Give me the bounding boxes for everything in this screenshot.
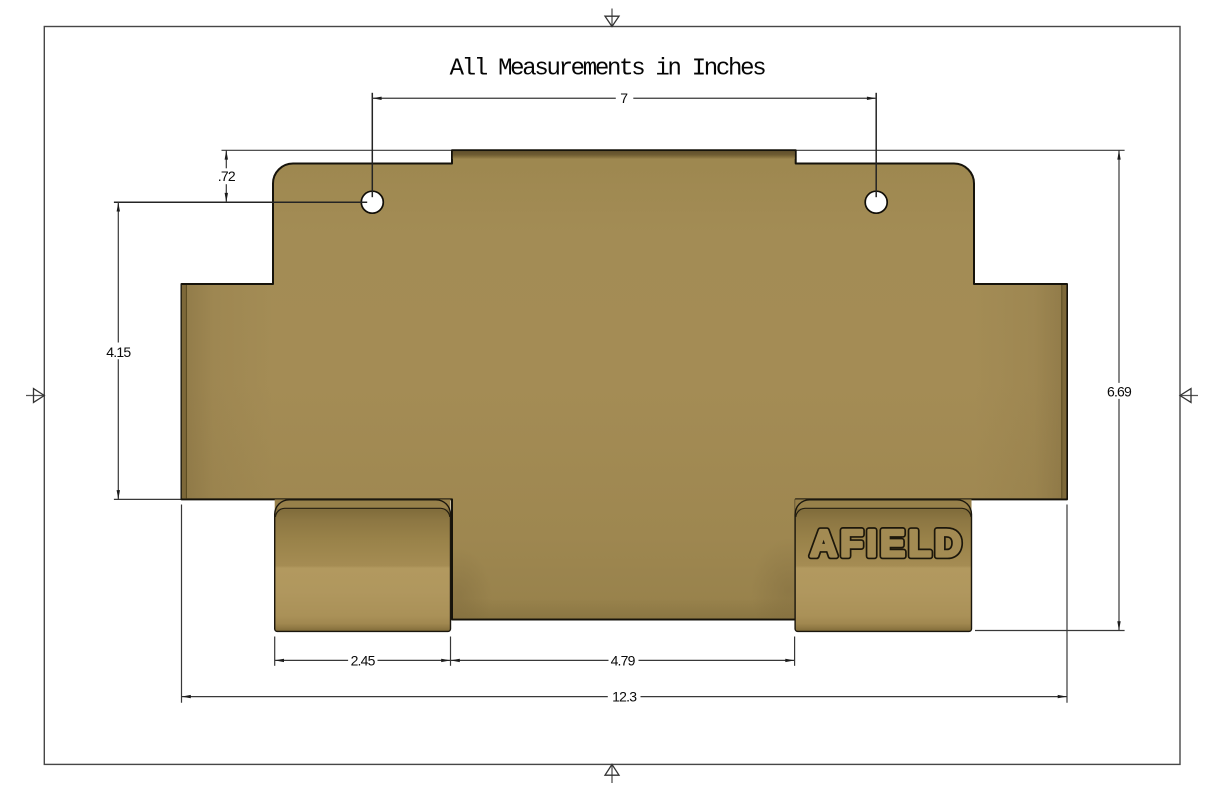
svg-text:4.15: 4.15: [106, 344, 131, 360]
svg-text:2.45: 2.45: [351, 652, 376, 668]
svg-text:12.3: 12.3: [612, 689, 637, 705]
svg-text:AFIELD: AFIELD: [810, 523, 965, 564]
svg-text:6.69: 6.69: [1107, 384, 1132, 400]
svg-text:.72: .72: [218, 168, 236, 184]
svg-text:7: 7: [620, 90, 628, 106]
svg-text:4.79: 4.79: [611, 652, 636, 668]
svg-text:All Measurements in Inches: All Measurements in Inches: [450, 56, 766, 83]
